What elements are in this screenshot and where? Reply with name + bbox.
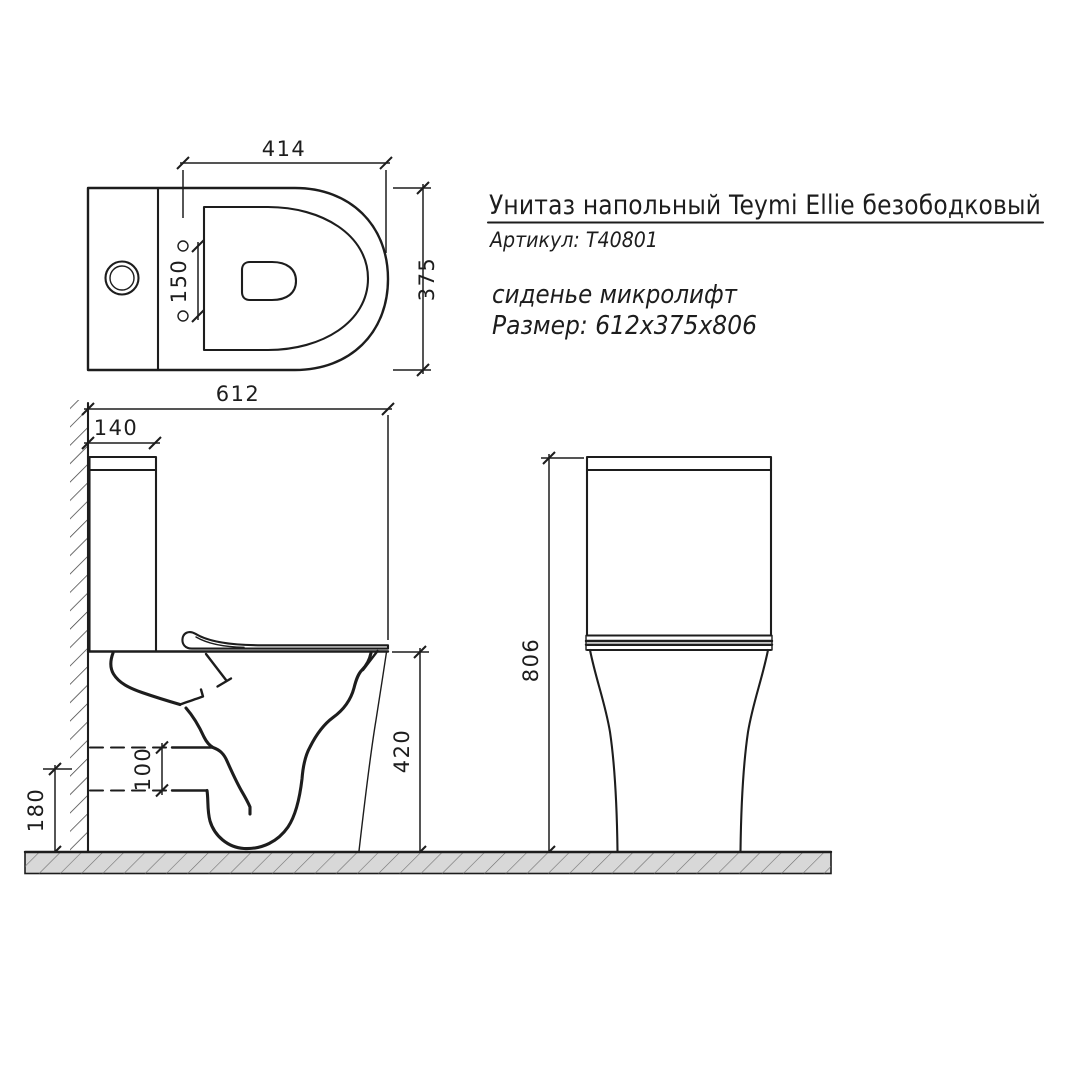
dim-375-label: 375 bbox=[415, 257, 439, 302]
dim-total-height: 806 bbox=[519, 452, 584, 858]
dim-hole-spacing: 150 bbox=[167, 240, 204, 322]
plan-outer-outline bbox=[88, 188, 388, 370]
plan-seat-outline bbox=[204, 207, 368, 350]
dim-outlet-diameter: 100 bbox=[131, 742, 168, 797]
seat-note: сиденье микролифт bbox=[492, 280, 738, 310]
top-view: 414 375 150 bbox=[88, 137, 439, 376]
front-pedestal bbox=[590, 650, 768, 851]
dim-420-label: 420 bbox=[390, 729, 414, 774]
side-seat-lid bbox=[182, 632, 388, 649]
header: Унитаз напольный Teymi Ellie безободковы… bbox=[488, 190, 1043, 341]
wall-hatch bbox=[70, 400, 88, 852]
dim-outlet-height: 180 bbox=[24, 763, 72, 858]
flush-button-inner bbox=[110, 266, 134, 290]
dim-bowl-width: 375 bbox=[393, 182, 439, 376]
dim-414-label: 414 bbox=[262, 137, 307, 161]
floor bbox=[25, 852, 831, 874]
dim-seat-length: 414 bbox=[177, 137, 392, 253]
dim-tank-depth: 140 bbox=[82, 416, 161, 449]
dim-100-label: 100 bbox=[131, 747, 155, 792]
size-note: Размер: 612х375х806 bbox=[492, 311, 757, 341]
technical-drawing-page: Унитаз напольный Teymi Ellie безободковы… bbox=[0, 0, 1080, 1080]
dim-rim-height: 420 bbox=[390, 646, 429, 858]
dim-150-label: 150 bbox=[167, 259, 191, 304]
dim-180-label: 180 bbox=[24, 788, 48, 833]
toilet-technical-drawing: Унитаз напольный Teymi Ellie безободковы… bbox=[0, 0, 1080, 1080]
floor-hatch bbox=[25, 852, 831, 874]
article-number: Артикул: Т40801 bbox=[488, 228, 658, 252]
seat-hole-bottom bbox=[178, 311, 188, 321]
front-seat-band bbox=[586, 636, 772, 651]
front-tank bbox=[587, 457, 771, 635]
drawing-title: Унитаз напольный Teymi Ellie безободковы… bbox=[489, 190, 1041, 221]
front-view: 806 bbox=[519, 452, 772, 858]
side-view: 612 140 100 180 42 bbox=[24, 382, 429, 858]
seat-hole-top bbox=[178, 241, 188, 251]
plan-drain-outline bbox=[242, 262, 296, 300]
dim-806-label: 806 bbox=[519, 638, 543, 683]
dim-612-label: 612 bbox=[216, 382, 261, 406]
dim-140-label: 140 bbox=[94, 416, 139, 440]
side-tank bbox=[90, 457, 157, 651]
